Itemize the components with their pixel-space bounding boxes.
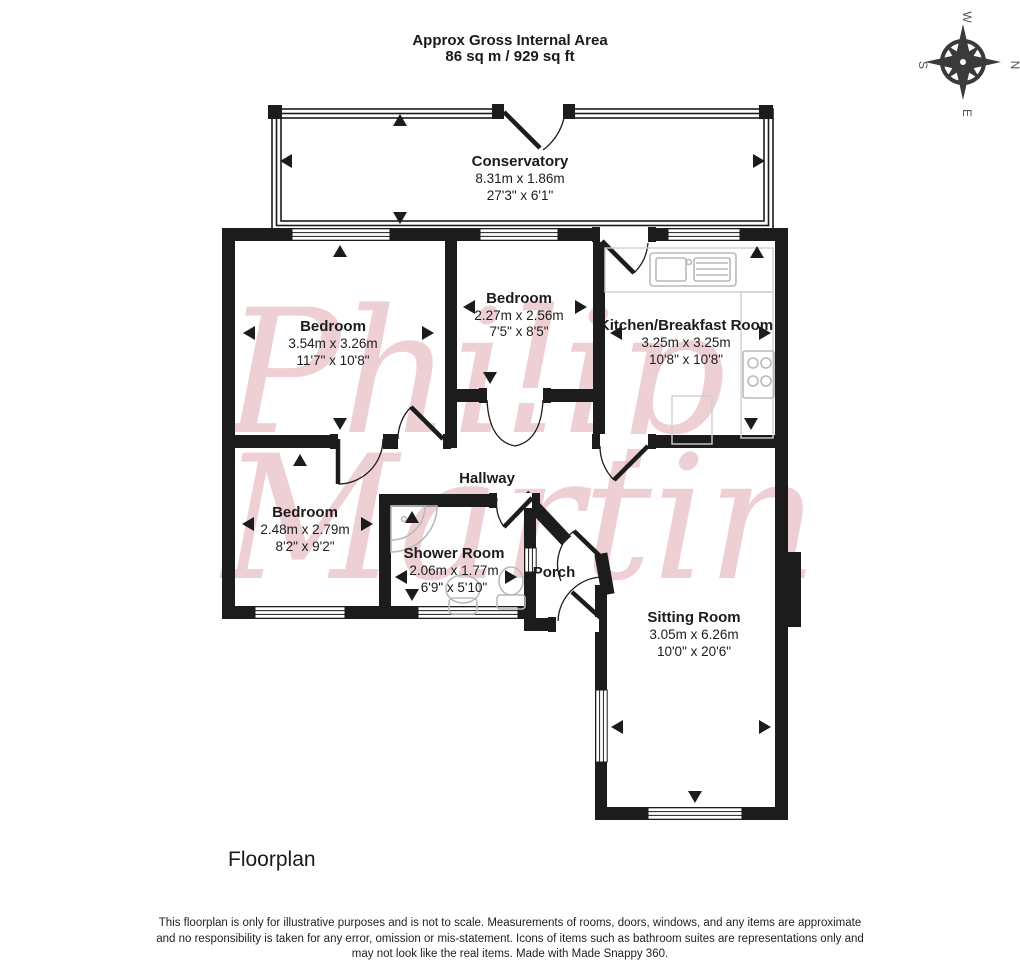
compass-left-label: S <box>916 61 930 69</box>
hob-icon <box>743 351 774 398</box>
room-name: Kitchen/Breakfast Room <box>599 317 773 334</box>
room-dims-m: 2.06m x 1.77m <box>409 563 498 578</box>
room-dims-ft: 27'3" x 6'1" <box>487 188 554 203</box>
room-hallway: Hallway <box>459 470 516 487</box>
room-bedroom-1: Bedroom 3.54m x 3.26m 11'7" x 10'8" <box>288 318 377 368</box>
room-dims-m: 3.05m x 6.26m <box>649 627 738 642</box>
room-name: Hallway <box>459 470 516 487</box>
room-dims-m: 2.48m x 2.79m <box>260 522 349 537</box>
room-dims-ft: 10'0" x 20'6" <box>657 644 731 659</box>
compass-bottom-label: E <box>960 109 974 117</box>
room-conservatory: Conservatory 8.31m x 1.86m 27'3" x 6'1" <box>472 153 569 203</box>
disclaimer-text: This floorplan is only for illustrative … <box>148 916 872 963</box>
room-dims-ft: 11'7" x 10'8" <box>296 353 369 368</box>
room-dims-ft: 7'5" x 8'5" <box>489 324 548 339</box>
room-dims-ft: 8'2" x 9'2" <box>275 539 334 554</box>
window-bedroom1-top <box>292 229 390 240</box>
room-name: Porch <box>533 564 576 581</box>
window-kitchen-top <box>668 229 740 240</box>
compass-right-label: N <box>1008 61 1020 70</box>
room-name: Sitting Room <box>647 609 740 626</box>
window-bedroom3-bottom <box>255 607 345 618</box>
room-dims-ft: 10'8" x 10'8" <box>649 352 723 367</box>
window-sitting-left <box>596 690 607 762</box>
room-dims-m: 3.25m x 3.25m <box>641 335 730 350</box>
room-name: Bedroom <box>272 504 338 521</box>
compass-top-label: W <box>960 11 974 23</box>
window-bedroom2-top <box>480 229 558 240</box>
room-name: Conservatory <box>472 153 569 170</box>
floorplan-caption: Floorplan <box>228 848 316 872</box>
room-dims-m: 8.31m x 1.86m <box>475 171 564 186</box>
room-dims-m: 3.54m x 3.26m <box>288 336 377 351</box>
room-porch: Porch <box>533 564 576 581</box>
room-dims-ft: 6'9" x 5'10" <box>421 580 488 595</box>
room-sitting: Sitting Room 3.05m x 6.26m 10'0" x 20'6" <box>647 609 740 659</box>
room-name: Bedroom <box>300 318 366 335</box>
door-conservatory-kitchen <box>602 241 648 273</box>
room-name: Bedroom <box>486 290 552 307</box>
compass-icon: W N E S <box>916 11 1020 117</box>
window-sitting-bottom <box>648 808 742 819</box>
room-dims-m: 2.27m x 2.56m <box>474 308 563 323</box>
room-name: Shower Room <box>404 545 505 562</box>
floorplan-canvas: Philip Martin <box>0 0 1020 975</box>
